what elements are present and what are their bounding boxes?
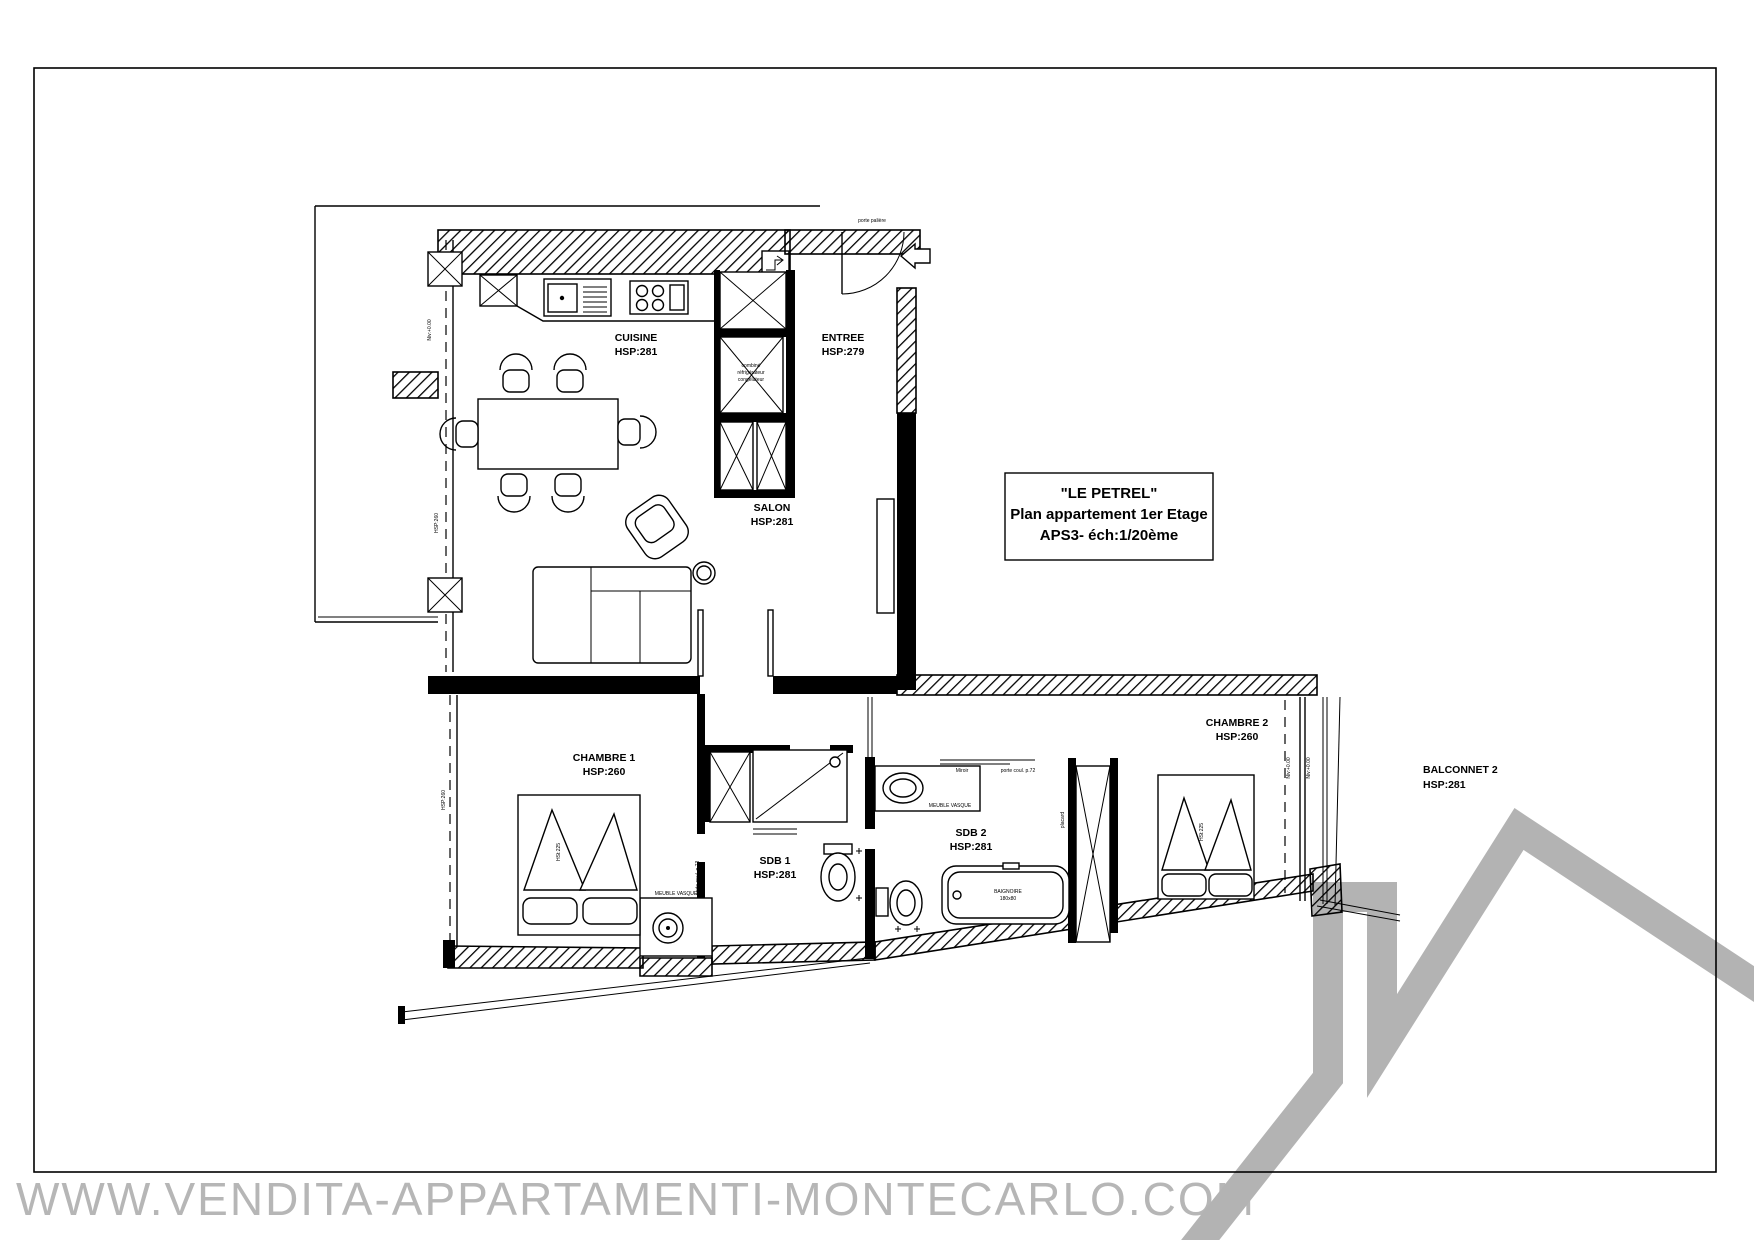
sliding-door-note: porte coul. p.73 [695, 861, 701, 896]
room-label-sdb-1: SDB 1 [760, 855, 791, 867]
dining-chair [554, 354, 586, 392]
room-label-salon: SALON [754, 502, 791, 514]
room-hsp-chambre-1: HSP:260 [583, 766, 626, 778]
armchair [621, 491, 693, 564]
room-label-chambre-1: CHAMBRE 1 [573, 752, 636, 764]
bed-note: HSt:225 [556, 843, 562, 861]
pillow [583, 898, 637, 924]
room-hsp-entree: HSP:279 [822, 346, 865, 358]
room-label-balconnet-2: BALCONNET 2 [1423, 764, 1498, 776]
fridge-column: combiné réfrigérateur congélateur [714, 270, 795, 498]
floor-plan-page: WWW.VENDITA-APPARTAMENTI-MONTECARLO.COM [0, 0, 1754, 1240]
room-label-entree: ENTREE [822, 332, 865, 344]
kitchen-hob [630, 281, 688, 314]
pillow [523, 898, 577, 924]
room-label-sdb-2: SDB 2 [956, 827, 987, 839]
toilet [821, 844, 862, 901]
bathtub-label: 180x80 [1000, 896, 1017, 902]
fridge-label: congélateur [738, 377, 764, 383]
room-hsp-sdb-1: HSP:281 [754, 869, 797, 881]
room-hsp-chambre-2: HSP:260 [1216, 731, 1259, 743]
title-block-name: "LE PETREL" [1061, 485, 1158, 502]
toilet [876, 881, 922, 932]
bed-note: HSt:225 [1199, 823, 1205, 841]
dining-chair [500, 354, 532, 392]
room-hsp-salon: HSP:281 [751, 516, 794, 528]
side-table-inner [697, 566, 711, 580]
room-label-chambre-2: CHAMBRE 2 [1206, 717, 1269, 729]
fridge-label: réfrigérateur [737, 370, 765, 376]
wardrobe-label: placard [1060, 812, 1066, 829]
title-block: "LE PETREL" Plan appartement 1er Etage A… [1005, 473, 1213, 560]
kitchen-pillar [480, 275, 517, 306]
room-hsp-cuisine: HSP:281 [615, 346, 658, 358]
vanity-label: MEUBLE VASQUE [655, 891, 698, 897]
bathtub: BAIGNOIRE 180x80 [942, 863, 1069, 924]
floor-plan-drawing: WWW.VENDITA-APPARTAMENTI-MONTECARLO.COM [0, 0, 1754, 1240]
salon-furniture [440, 354, 894, 663]
dining-table [478, 399, 618, 469]
vanity-unit: MEUBLE VASQUE [640, 891, 712, 956]
sliding-door [940, 760, 1035, 764]
level-note: Niv:+0.00 [1306, 757, 1312, 778]
entry-door-note: porte palière [858, 218, 886, 224]
level-note: Niv:+0.00 [427, 319, 433, 340]
bathtub-label: BAIGNOIRE [994, 889, 1022, 895]
bedroom-2-furniture: HSt:225 [1158, 775, 1254, 899]
dining-chair [552, 474, 584, 512]
room-hsp-balconnet-2: HSP:281 [1423, 779, 1466, 791]
facade-pillar [428, 252, 462, 286]
room-hsp-sdb-2: HSP:281 [950, 841, 993, 853]
tv-cabinet [877, 499, 894, 613]
dining-chair [498, 474, 530, 512]
bathroom-1-fixtures: MEUBLE VASQUE porte coul. p.73 [640, 750, 862, 956]
mirror-label: Miroir [956, 768, 969, 774]
bedroom-1-furniture: HSt:225 [518, 795, 640, 935]
height-note: HSP:260 [434, 513, 440, 533]
sofa [533, 567, 691, 663]
kitchen-sink [544, 279, 611, 316]
dining-chair [618, 416, 656, 448]
pillow [1162, 874, 1206, 896]
room-label-cuisine: CUISINE [615, 332, 658, 344]
level-note: Niv:+0.00 [1286, 757, 1292, 778]
sliding-door-note: porte coul. p.72 [1001, 768, 1036, 774]
fridge-label: combiné [742, 363, 761, 369]
title-block-line2: Plan appartement 1er Etage [1010, 506, 1208, 523]
title-block-line3: APS3- éch:1/20ème [1040, 527, 1178, 544]
facade-pillar [428, 578, 462, 612]
height-note: HSP:260 [441, 790, 447, 810]
vanity-unit: Miroir MEUBLE VASQUE [875, 766, 980, 811]
watermark-text: WWW.VENDITA-APPARTAMENTI-MONTECARLO.COM [16, 1173, 1256, 1225]
shower [753, 750, 847, 822]
towel-rail [753, 829, 797, 834]
pillow [1209, 874, 1252, 896]
vanity-label: MEUBLE VASQUE [929, 803, 972, 809]
